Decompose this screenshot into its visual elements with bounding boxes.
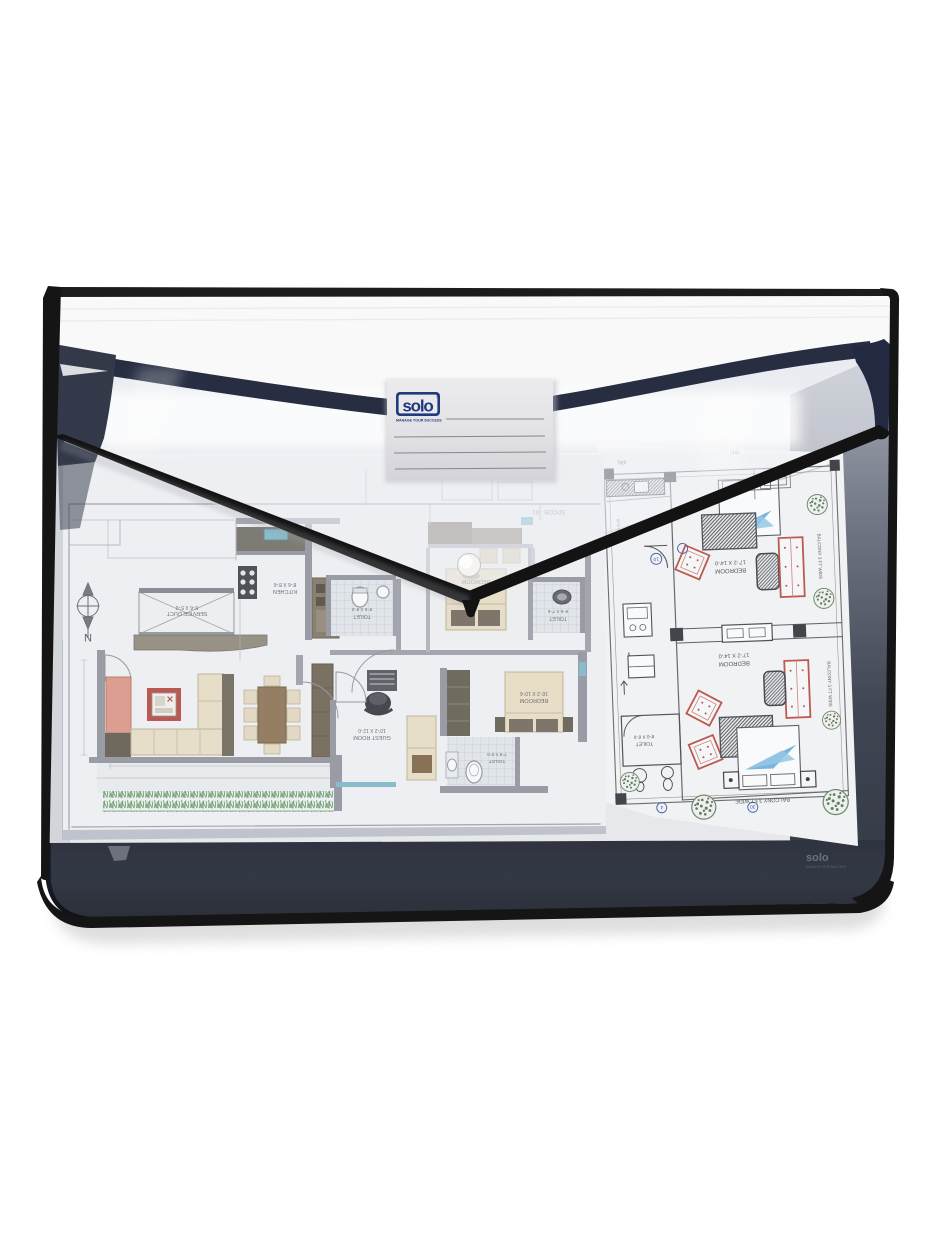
svg-text:MANAGE YOUR SUCCESS: MANAGE YOUR SUCCESS: [396, 419, 442, 423]
svg-text:solo: solo: [402, 397, 433, 416]
svg-text:®: ®: [436, 394, 439, 399]
